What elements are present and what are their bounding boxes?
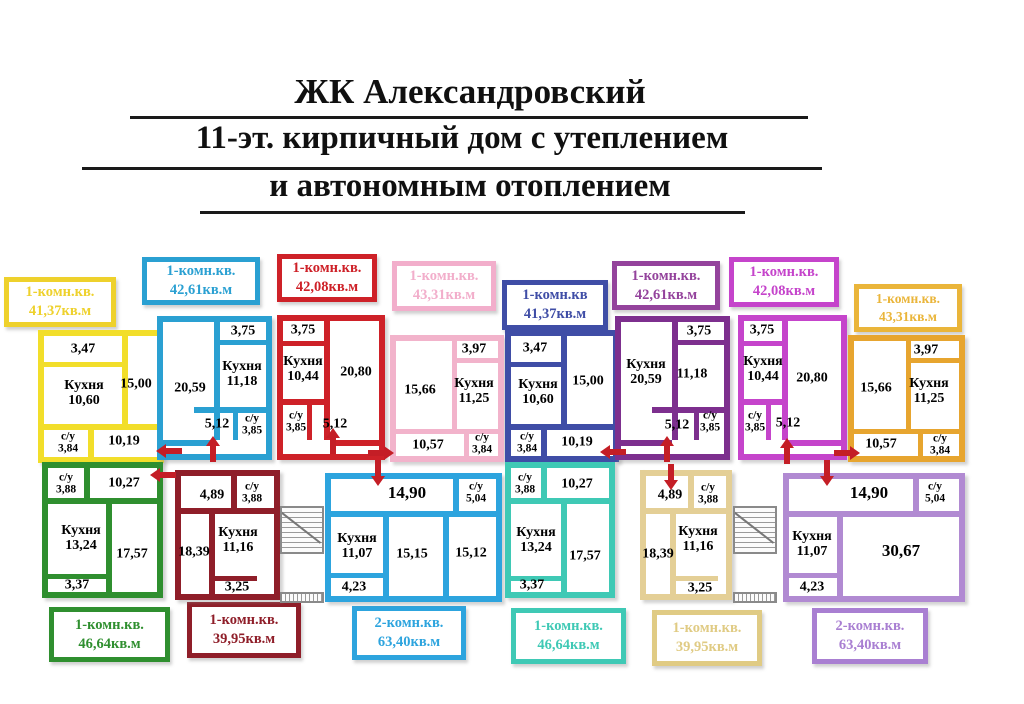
room-label: Кухня 10,44 — [743, 354, 782, 384]
room-label: с/у 3,85 — [700, 410, 720, 435]
room-label: 15,66 — [860, 380, 892, 395]
legend-area: 46,64кв.м — [78, 635, 140, 654]
wall — [541, 430, 547, 456]
room-label: 14,90 — [388, 484, 426, 502]
wall — [678, 340, 724, 345]
legend-top-gold: 1-комн.кв. 43,31кв.м — [854, 284, 962, 332]
legend-type: 1-комн.кв. — [750, 263, 819, 282]
floor-plan-page: ЖК Александровский 11-эт. кирпичный дом … — [0, 0, 1024, 704]
apartment-top-gold: 15,66 3,97 Кухня 11,25 10,57 с/у 3,84 — [848, 335, 965, 462]
room-label: 18,39 — [642, 546, 674, 561]
room-label: 14,90 — [850, 484, 888, 502]
wall — [744, 341, 782, 346]
room-label: 15,66 — [404, 382, 436, 397]
legend-top-yellow: 1-комн.кв. 41,37кв.м — [4, 277, 116, 327]
wall — [788, 440, 841, 446]
wall — [220, 340, 266, 345]
room-label: 5,12 — [665, 417, 690, 432]
stair-diagonal — [733, 510, 774, 544]
legend-top-red: 1-комн.кв. 42,08кв.м — [277, 254, 377, 302]
room-label: с/у 5,04 — [925, 481, 945, 506]
room-label: Кухня 10,60 — [64, 378, 103, 408]
wall — [906, 358, 959, 363]
room-label: 5,12 — [205, 416, 230, 431]
legend-area: 41,37кв.м — [524, 305, 586, 324]
legend-bottom-turquoise: 1-комн.кв. 46,64кв.м — [511, 608, 626, 664]
room-label: с/у 5,04 — [466, 481, 486, 506]
room-label: 4,23 — [800, 579, 825, 594]
room-label: с/у 3,85 — [745, 410, 765, 435]
wall — [88, 430, 94, 457]
legend-type: 1-комн.кв — [522, 286, 587, 305]
room-label: 3,97 — [914, 342, 939, 357]
room-label: с/у 3,84 — [517, 431, 537, 456]
staircase — [733, 506, 777, 554]
legend-area: 43,31кв.м — [879, 308, 937, 326]
room-label: Кухня 13,24 — [61, 523, 100, 553]
legend-bottom-tan: 1-комн.кв. 39,95кв.м — [652, 610, 762, 666]
legend-area: 63,40кв.м — [839, 636, 901, 655]
apartment-top-purple: Кухня 20,59 11,18 3,75 5,12 с/у 3,85 — [615, 316, 730, 460]
wall — [283, 399, 324, 405]
wall — [744, 399, 782, 405]
staircase — [280, 506, 324, 554]
room-label: с/у 3,85 — [286, 410, 306, 435]
room-label: 10,27 — [108, 475, 140, 490]
room-label: 3,25 — [688, 580, 713, 595]
legend-type: 1-комн.кв. — [26, 283, 95, 302]
room-label: 5,12 — [776, 415, 801, 430]
room-label: Кухня 11,25 — [454, 376, 493, 406]
apartment-bottom-green: с/у 3,88 10,27 Кухня 13,24 17,57 3,37 — [42, 462, 163, 598]
room-label: с/у 3,84 — [472, 432, 492, 457]
legend-area: 39,95кв.м — [676, 638, 738, 657]
legend-area: 42,08кв.м — [296, 278, 358, 297]
room-label: 3,37 — [520, 577, 545, 592]
room-label: 17,57 — [116, 546, 148, 561]
apartment-top-magenta: 3,75 Кухня 10,44 20,80 с/у 3,85 5,12 — [738, 315, 847, 460]
room-label: 17,57 — [569, 548, 601, 563]
wall — [561, 504, 567, 592]
room-label: 3,47 — [523, 340, 548, 355]
legend-type: 1-комн.кв. — [876, 290, 940, 308]
room-label: 10,27 — [561, 476, 593, 491]
room-label: Кухня 11,07 — [337, 531, 376, 561]
staircase-landing — [733, 592, 777, 603]
page-title-line2: 11-эт. кирпичный дом с утеплением — [92, 120, 832, 157]
room-label: 3,25 — [225, 579, 250, 594]
room-label: 10,57 — [865, 436, 897, 451]
wall — [44, 362, 122, 367]
wall — [330, 440, 379, 446]
room-label: Кухня 13,24 — [516, 525, 555, 555]
room-label: Кухня 11,07 — [792, 529, 831, 559]
room-label: с/у 3,84 — [58, 431, 78, 456]
wall — [561, 336, 567, 428]
legend-bottom-violet: 2-комн.кв. 63,40кв.м — [812, 608, 928, 664]
room-label: 3,37 — [65, 577, 90, 592]
wall — [688, 476, 694, 508]
room-label: 18,39 — [178, 544, 210, 559]
apartment-bottom-violet: 14,90 с/у 5,04 Кухня 11,07 30,67 4,23 — [783, 473, 965, 602]
apartment-top-navy: 3,47 Кухня 10,60 15,00 с/у 3,84 10,19 — [505, 330, 619, 462]
room-label: с/у 3,88 — [515, 472, 535, 497]
title-underline — [200, 211, 745, 214]
room-label: Кухня 10,44 — [283, 354, 322, 384]
room-label: Кухня 20,59 — [626, 357, 665, 387]
legend-type: 1-комн.кв. — [167, 262, 236, 281]
room-label: 3,75 — [291, 322, 316, 337]
wall — [511, 424, 613, 430]
wall — [283, 341, 324, 346]
wall — [452, 358, 498, 363]
legend-top-purple: 1-комн.кв. 42,61кв.м — [612, 261, 720, 310]
legend-type: 1-комн.кв. — [75, 616, 144, 635]
wall — [209, 514, 215, 594]
wall — [789, 573, 837, 578]
room-label: 3,97 — [462, 341, 487, 356]
legend-area: 42,61кв.м — [170, 281, 232, 300]
room-label: 15,15 — [396, 546, 428, 561]
legend-type: 1-комн.кв. — [410, 267, 479, 286]
apartment-bottom-blue: 14,90 с/у 5,04 Кухня 11,07 15,15 15,12 4… — [325, 473, 502, 602]
legend-top-magenta: 1-комн.кв. 42,08кв.м — [729, 257, 839, 307]
apartment-top-pink: 15,66 3,97 Кухня 11,25 10,57 с/у 3,84 — [390, 335, 504, 462]
wall — [163, 440, 214, 446]
legend-area: 46,64кв.м — [537, 636, 599, 655]
apartment-top-yellow: 3,47 Кухня 10,60 15,00 с/у 3,84 10,19 — [38, 330, 164, 463]
room-label: с/у 3,88 — [698, 482, 718, 507]
wall — [443, 517, 449, 596]
room-label: 20,59 — [174, 380, 206, 395]
wall — [789, 511, 959, 517]
room-label: 11,18 — [677, 366, 708, 381]
wall — [766, 405, 771, 440]
wall — [918, 434, 923, 456]
legend-type: 1-комн.кв. — [673, 619, 742, 638]
page-title-line3: и автономным отоплением — [180, 168, 760, 205]
legend-type: 1-комн.кв. — [534, 617, 603, 636]
room-label: 5,12 — [323, 416, 348, 431]
legend-type: 1-комн.кв. — [632, 267, 701, 286]
title-underline — [130, 116, 808, 119]
room-label: Кухня 11,18 — [222, 359, 261, 389]
room-label: 3,75 — [231, 323, 256, 338]
legend-area: 42,61кв.м — [635, 286, 697, 305]
wall — [837, 517, 843, 596]
legend-area: 39,95кв.м — [213, 630, 275, 649]
wall — [913, 479, 919, 511]
wall — [84, 468, 90, 498]
room-label: Кухня 11,25 — [909, 376, 948, 406]
wall — [511, 498, 609, 504]
room-label: Кухня 11,16 — [678, 524, 717, 554]
legend-type: 2-комн.кв. — [375, 614, 444, 633]
legend-top-pink: 1-комн.кв. 43,31кв.м — [392, 261, 496, 311]
room-label: 3,75 — [687, 323, 712, 338]
wall — [541, 468, 547, 498]
wall — [231, 476, 237, 508]
room-label: 20,80 — [796, 370, 828, 385]
legend-type: 1-комн.кв. — [293, 259, 362, 278]
room-label: 10,19 — [561, 434, 593, 449]
room-label: 20,80 — [340, 364, 372, 379]
wall — [646, 508, 726, 514]
legend-top-cyan: 1-комн.кв. 42,61кв.м — [142, 257, 260, 305]
wall — [331, 511, 496, 517]
room-label: 30,67 — [882, 542, 920, 560]
wall — [464, 434, 469, 456]
wall — [694, 413, 699, 440]
room-label: 4,89 — [200, 487, 225, 502]
room-label: 15,00 — [120, 376, 152, 391]
wall — [44, 424, 158, 430]
room-label: 15,00 — [572, 373, 604, 388]
wall — [383, 517, 389, 596]
wall — [307, 405, 312, 440]
room-label: с/у 3,88 — [242, 481, 262, 506]
room-label: Кухня 10,60 — [518, 377, 557, 407]
legend-area: 43,31кв.м — [413, 286, 475, 305]
stair-diagonal — [280, 510, 321, 544]
wall — [511, 362, 561, 367]
apartment-bottom-turquoise: с/у 3,88 10,27 Кухня 13,24 17,57 3,37 — [505, 462, 615, 598]
room-label: 10,19 — [108, 433, 140, 448]
wall — [233, 413, 238, 440]
wall — [106, 504, 112, 592]
legend-area: 42,08кв.м — [753, 282, 815, 301]
room-label: 3,75 — [750, 322, 775, 337]
room-label: 10,57 — [412, 437, 444, 452]
legend-bottom-blue: 2-комн.кв. 63,40кв.м — [352, 606, 466, 660]
page-title-line1: ЖК Александровский — [150, 72, 790, 112]
room-label: с/у 3,88 — [56, 472, 76, 497]
legend-type: 2-комн.кв. — [836, 617, 905, 636]
legend-area: 63,40кв.м — [378, 633, 440, 652]
wall — [331, 573, 383, 578]
room-label: 4,89 — [658, 487, 683, 502]
wall — [48, 498, 157, 504]
legend-bottom-green: 1-комн.кв. 46,64кв.м — [49, 607, 170, 662]
wall — [453, 479, 459, 511]
room-label: 3,47 — [71, 341, 96, 356]
staircase-landing — [280, 592, 324, 603]
apartment-bottom-tan: 4,89 с/у 3,88 18,39 Кухня 11,16 3,25 — [640, 470, 732, 600]
legend-top-navy: 1-комн.кв 41,37кв.м — [502, 280, 608, 330]
room-label: 15,12 — [455, 545, 487, 560]
room-label: Кухня 11,16 — [218, 525, 257, 555]
room-label: с/у 3,84 — [930, 433, 950, 458]
room-label: с/у 3,85 — [242, 413, 262, 438]
room-label: 4,23 — [342, 579, 367, 594]
wall — [181, 508, 274, 514]
apartment-bottom-darkred: 4,89 с/у 3,88 18,39 Кухня 11,16 3,25 — [175, 470, 280, 600]
legend-bottom-darkred: 1-комн.кв. 39,95кв.м — [187, 602, 301, 658]
legend-type: 1-комн.кв. — [210, 611, 279, 630]
legend-area: 41,37кв.м — [29, 302, 91, 321]
